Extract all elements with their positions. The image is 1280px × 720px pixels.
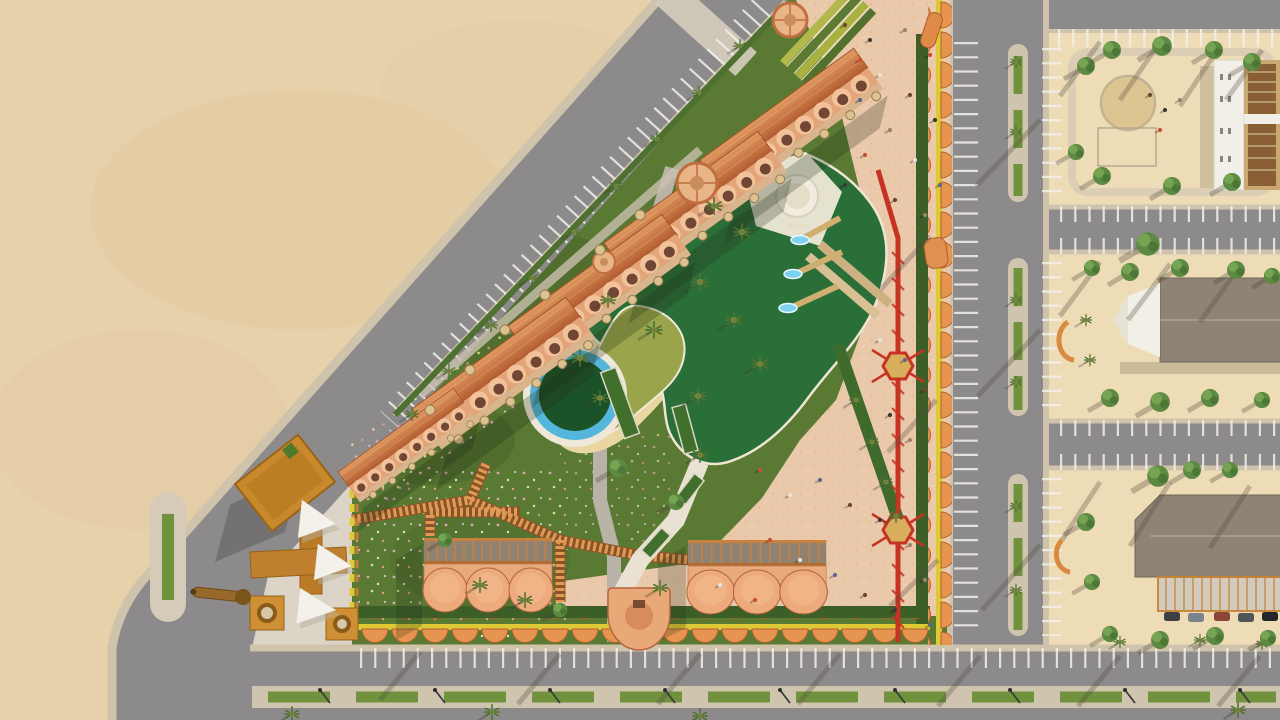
shade-tree (1147, 465, 1169, 487)
shade-tree (1201, 389, 1219, 407)
shade-tree (1084, 574, 1100, 590)
person (818, 478, 822, 482)
person (913, 158, 917, 162)
person (923, 388, 927, 392)
person (843, 23, 847, 27)
shade-tree (1084, 260, 1100, 276)
person (753, 598, 757, 602)
shade-tree (609, 459, 627, 477)
shade-tree (1243, 53, 1261, 71)
shade-tree (1136, 232, 1159, 255)
person (833, 573, 837, 577)
person (1163, 108, 1167, 112)
south-gate (608, 588, 670, 650)
shade-tree (1223, 173, 1241, 191)
north-road (1045, 0, 1280, 32)
gate-opening (633, 600, 645, 608)
shade-tree (1206, 627, 1224, 645)
street-lamp (778, 688, 782, 692)
shade-tree (668, 494, 684, 510)
person (863, 593, 867, 597)
shade-tree (1183, 461, 1201, 479)
aerial-site-render (0, 0, 1280, 720)
shade-tree (1093, 167, 1111, 185)
person (788, 493, 792, 497)
person (1178, 98, 1182, 102)
shade-tree (1152, 36, 1172, 56)
person (893, 608, 897, 612)
shade-tree (1254, 392, 1270, 408)
street-lamp (663, 688, 667, 692)
person (718, 583, 722, 587)
street-lamp (318, 688, 322, 692)
street-lamp (1123, 688, 1127, 692)
east-canopy-wall (928, 0, 952, 645)
shade-tree (1171, 259, 1189, 277)
person (923, 578, 927, 582)
person (868, 38, 872, 42)
person (908, 543, 912, 547)
person (843, 183, 847, 187)
person (1148, 93, 1152, 97)
shade-tree (1077, 513, 1095, 531)
shade-tree (1205, 41, 1223, 59)
person (888, 128, 892, 132)
street-lamp (893, 688, 897, 692)
spa-steps (788, 224, 806, 228)
shade-tree (1151, 631, 1169, 649)
dome-pavilion (593, 251, 615, 273)
shade-tree (1163, 177, 1181, 195)
person (878, 338, 882, 342)
shade-tree (1121, 263, 1139, 281)
shade-tree (1103, 41, 1121, 59)
car-canopy (1158, 577, 1280, 611)
arch-tower (250, 596, 284, 630)
person (848, 503, 852, 507)
street-lamp (433, 688, 437, 692)
person (888, 413, 892, 417)
person (903, 358, 907, 362)
person (928, 53, 932, 57)
street-lamp (1238, 688, 1242, 692)
shade-tree (1102, 626, 1118, 642)
person (858, 58, 862, 62)
shade-tree (553, 603, 567, 617)
shade-tree (1260, 630, 1276, 646)
person (798, 558, 802, 562)
street-lamp (548, 688, 552, 692)
dome-pavilion (773, 3, 807, 37)
person (1158, 128, 1162, 132)
street-lamp (1008, 688, 1012, 692)
shade-tree (1264, 268, 1280, 284)
person (893, 198, 897, 202)
shade-tree (438, 533, 452, 547)
shade-tree (1101, 389, 1119, 407)
person (858, 98, 862, 102)
shade-tree (1222, 462, 1238, 478)
person (758, 468, 762, 472)
shade-tree (1068, 144, 1084, 160)
person (908, 438, 912, 442)
white-gable-entry (1128, 283, 1160, 357)
person (768, 538, 772, 542)
dome-pavilion (677, 163, 717, 203)
person (933, 118, 937, 122)
person (908, 93, 912, 97)
person (938, 183, 942, 187)
shade-tree (1150, 392, 1170, 412)
shade-tree (1227, 261, 1245, 279)
person (863, 153, 867, 157)
person (878, 518, 882, 522)
person (923, 213, 927, 217)
person (903, 28, 907, 32)
person (878, 73, 882, 77)
screenshot-root (0, 0, 1280, 720)
person (928, 623, 932, 627)
